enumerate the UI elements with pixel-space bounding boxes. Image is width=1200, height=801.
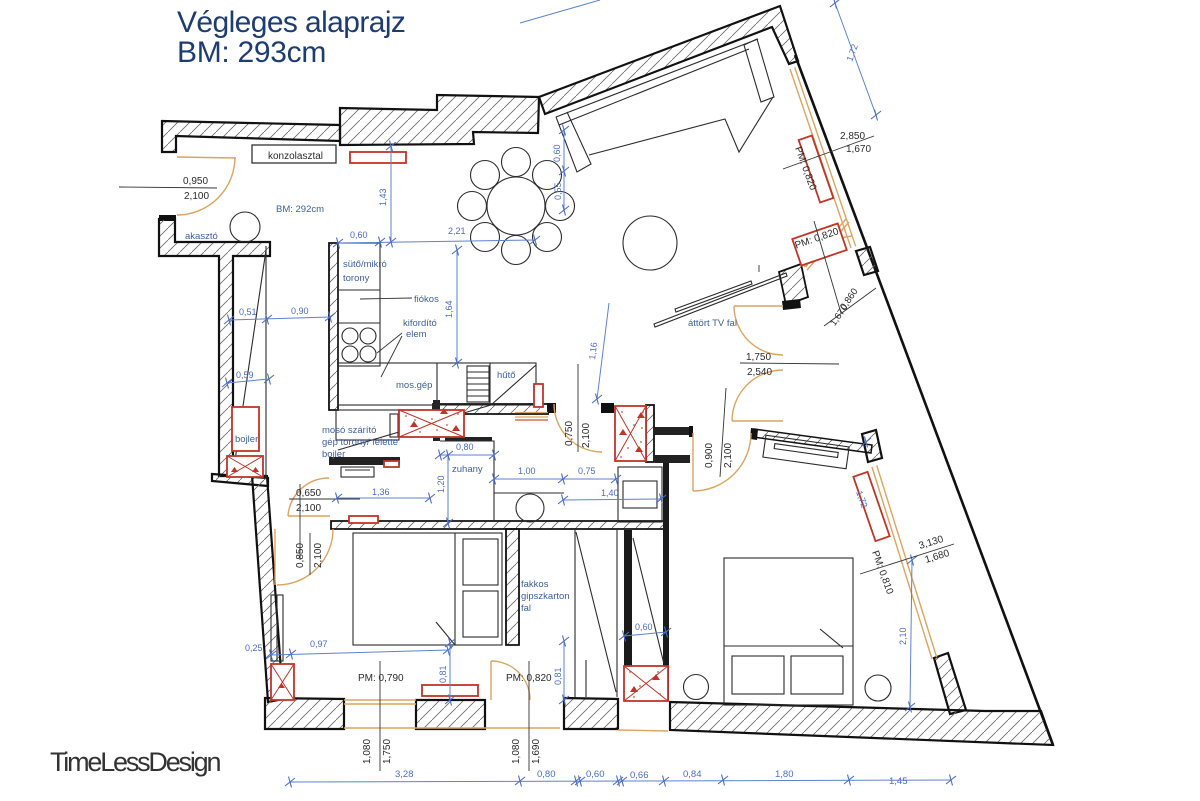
svg-text:0,60: 0,60 xyxy=(635,622,653,632)
svg-text:0,80: 0,80 xyxy=(537,769,556,780)
svg-text:1,750: 1,750 xyxy=(382,739,393,764)
svg-text:0,59: 0,59 xyxy=(236,370,254,380)
svg-text:mos.gép: mos.gép xyxy=(396,380,432,391)
svg-text:0,25: 0,25 xyxy=(245,643,263,653)
svg-text:sütő/mikró: sütő/mikró xyxy=(343,259,387,270)
svg-text:akasztó: akasztó xyxy=(185,231,218,242)
svg-text:Végleges alaprajz: Végleges alaprajz xyxy=(177,6,405,39)
svg-text:TimeLessDesign: TimeLessDesign xyxy=(50,747,220,777)
svg-text:torony: torony xyxy=(343,273,370,284)
svg-text:2,100: 2,100 xyxy=(581,423,592,448)
svg-text:1,45: 1,45 xyxy=(889,776,908,787)
svg-text:2,540: 2,540 xyxy=(747,367,772,378)
svg-text:bojler: bojler xyxy=(235,434,258,445)
svg-text:0,75: 0,75 xyxy=(578,466,596,476)
svg-text:2,100: 2,100 xyxy=(184,191,209,202)
svg-text:0,81: 0,81 xyxy=(553,667,563,685)
svg-text:PM: 0,790: PM: 0,790 xyxy=(358,673,404,684)
svg-text:3,28: 3,28 xyxy=(395,769,414,780)
svg-text:0,90: 0,90 xyxy=(291,306,309,316)
svg-text:0,66: 0,66 xyxy=(630,770,649,781)
svg-text:0,60: 0,60 xyxy=(350,230,368,240)
svg-text:zuhany: zuhany xyxy=(452,464,483,475)
svg-text:2,10: 2,10 xyxy=(898,627,908,645)
svg-text:0,850: 0,850 xyxy=(295,543,306,568)
svg-text:1,080: 1,080 xyxy=(362,739,373,764)
svg-text:fal: fal xyxy=(521,603,531,614)
svg-text:BM: 292cm: BM: 292cm xyxy=(276,204,324,215)
svg-text:1,16: 1,16 xyxy=(587,342,599,361)
svg-text:0,81: 0,81 xyxy=(438,665,448,683)
svg-text:1,20: 1,20 xyxy=(436,475,446,493)
svg-text:0,55: 0,55 xyxy=(553,182,563,200)
svg-text:bojler: bojler xyxy=(322,449,345,460)
svg-text:2,850: 2,850 xyxy=(840,131,865,142)
svg-text:0,51: 0,51 xyxy=(239,307,257,317)
svg-text:1,40: 1,40 xyxy=(601,488,619,498)
svg-text:konzolasztal: konzolasztal xyxy=(268,151,323,162)
svg-text:1,670: 1,670 xyxy=(846,144,871,155)
svg-text:gép torony/ felette: gép torony/ felette xyxy=(322,437,398,448)
svg-text:mosó szárító: mosó szárító xyxy=(322,425,376,436)
svg-text:elem: elem xyxy=(406,329,427,340)
svg-text:1,43: 1,43 xyxy=(378,188,388,206)
svg-text:0,750: 0,750 xyxy=(564,421,575,446)
svg-text:0,80: 0,80 xyxy=(456,442,474,452)
svg-text:0,900: 0,900 xyxy=(704,443,715,468)
svg-text:0,60: 0,60 xyxy=(586,769,605,780)
svg-text:0,97: 0,97 xyxy=(310,639,328,649)
svg-text:1,36: 1,36 xyxy=(372,487,390,497)
svg-text:2,100: 2,100 xyxy=(313,543,324,568)
svg-text:hűtő: hűtő xyxy=(497,370,516,381)
svg-text:1,64: 1,64 xyxy=(444,300,454,318)
svg-text:BM: 293cm: BM: 293cm xyxy=(177,36,326,69)
svg-text:1,080: 1,080 xyxy=(511,739,522,764)
svg-text:0,60: 0,60 xyxy=(552,144,562,162)
svg-text:fakkos: fakkos xyxy=(521,579,549,590)
svg-text:1,00: 1,00 xyxy=(518,466,536,476)
svg-text:0,84: 0,84 xyxy=(683,769,702,780)
svg-text:kifordító: kifordító xyxy=(403,318,437,329)
svg-text:2,21: 2,21 xyxy=(448,226,466,236)
svg-text:1,80: 1,80 xyxy=(775,769,794,780)
svg-text:2,100: 2,100 xyxy=(723,443,734,468)
svg-text:1,690: 1,690 xyxy=(531,739,542,764)
svg-text:1,750: 1,750 xyxy=(746,352,771,363)
svg-text:fiókos: fiókos xyxy=(414,294,439,305)
svg-text:áttört TV fal: áttört TV fal xyxy=(688,318,737,329)
svg-text:0,950: 0,950 xyxy=(183,176,208,187)
svg-text:gipszkarton: gipszkarton xyxy=(521,591,570,602)
